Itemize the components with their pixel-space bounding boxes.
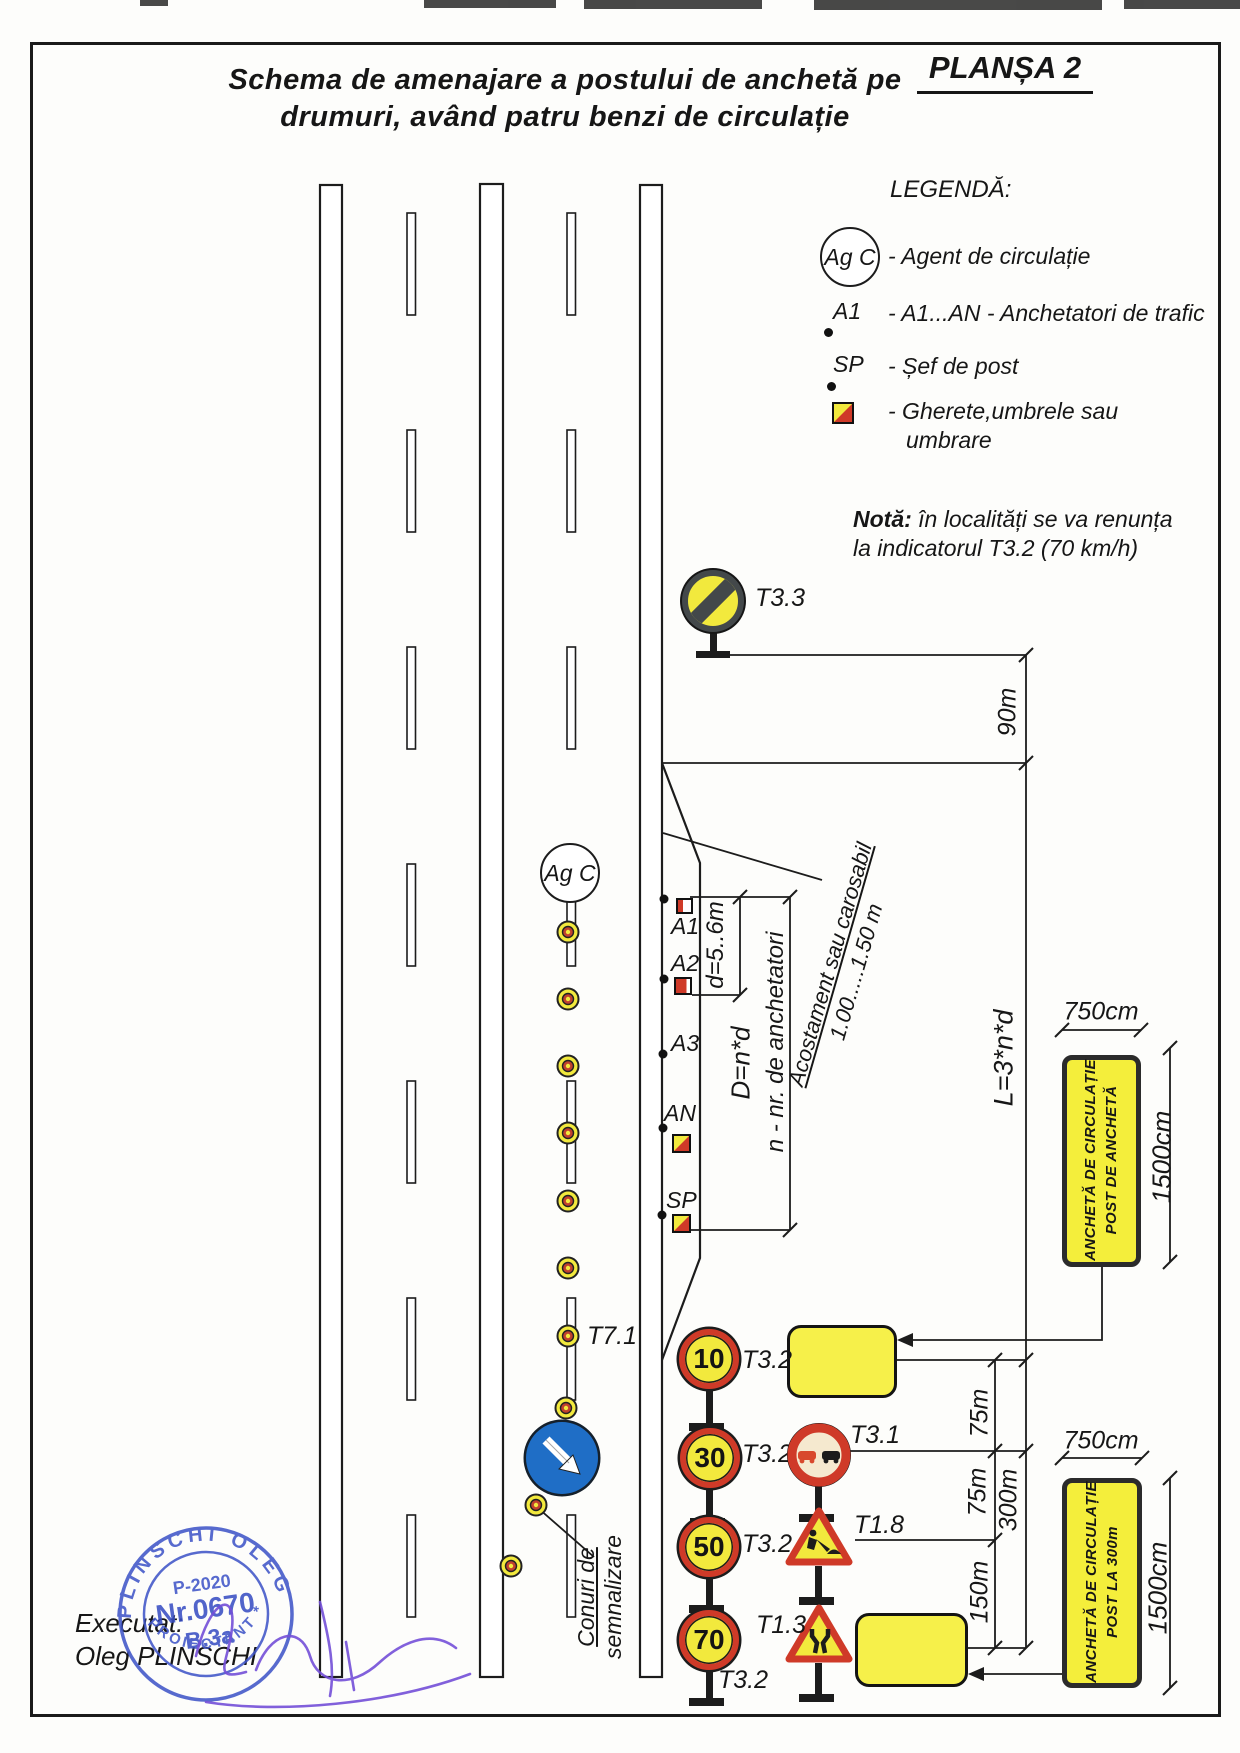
info-panel-2-text: ANCHETĂ DE CIRCULAȚIE POST LA 300m [1081,1481,1123,1683]
dim-1500cm-2: 1500cm [1143,1542,1174,1635]
agent-circle-icon: Ag C [820,227,880,287]
round-stamp: PLINSCHI OLEG PROIECTANT * P-2020 Nr.067… [98,1506,498,1736]
sp-dot-icon [827,382,836,391]
dim-L-formula: L=3*n*d [989,1010,1020,1107]
note-line1: Notă: în localități se va renunța [853,506,1173,533]
t18-roadworks-sign [785,1506,853,1568]
marker-a1: A1 [671,913,699,940]
cones-note: Conuri de semnalizare [573,1535,627,1659]
legend-sp-label: - Șef de post [888,353,1018,380]
a1-dot-icon [824,328,833,337]
road-edge-left [320,185,342,1677]
dim-n-note: n - nr. de anchetatori [762,932,790,1153]
booth-box-1 [787,1325,897,1398]
t13-label: T1.3 [756,1611,806,1640]
booth-icon [832,402,854,424]
page-title: Schema de amenajare a postului de anchet… [165,64,965,97]
dim-750cm-1: 750cm [1063,998,1138,1027]
t32-label-4: T3.2 [718,1666,768,1695]
speed-50-value: 50 [693,1531,724,1563]
t71-label: T7.1 [587,1322,637,1351]
marker-sp: SP [666,1187,697,1214]
t32-label-1: T3.2 [742,1346,792,1375]
speed-70-value: 70 [693,1624,724,1656]
speed-50-sign: 50 [679,1517,739,1577]
sheet-number: PLANȘA 2 [917,50,1093,94]
dim-75m-2: 75m [964,1468,993,1517]
speed-70-sign: 70 [679,1610,739,1670]
note-line2: la indicatorul T3.2 (70 km/h) [853,535,1138,562]
cones-note-line2: semnalizare [600,1535,626,1659]
dim-750cm-2: 750cm [1063,1427,1138,1456]
legend-agent-label: - Agent de circulație [888,243,1090,270]
agent-road-text: Ag C [544,860,595,887]
dim-75m-1: 75m [966,1389,995,1438]
marker-a2: A2 [671,950,699,977]
marker-a3: A3 [671,1030,699,1057]
speed-10-value: 10 [693,1343,724,1375]
t32-label-2: T3.2 [742,1440,792,1469]
marker-an: AN [664,1100,696,1127]
dim-90m: 90m [994,688,1023,737]
road-lines [320,184,662,1677]
plan-sheet: Schema de amenajare a postului de anchet… [0,0,1240,1753]
speed-10-sign: 10 [679,1329,739,1389]
legend-a1-symbol: A1 [833,298,861,325]
t33-label: T3.3 [755,584,805,613]
post-area-taper [662,763,700,1360]
legend-booth-label2: umbrare [906,427,992,454]
info-panel-1-text: ANCHETĂ DE CIRCULAȚIE POST DE ANCHETĂ [1080,1059,1122,1261]
dim-d-spacing: d=5..6m [702,901,730,988]
panel1-line2: POST DE ANCHETĂ [1103,1086,1120,1235]
booth-a2 [674,977,692,995]
t31-no-overtaking-sign [786,1422,852,1488]
keep-right-sign [526,1422,598,1494]
panel2-line2: POST LA 300m [1104,1526,1121,1638]
agent-symbol-text: Ag C [824,244,875,271]
t31-label: T3.1 [850,1421,900,1450]
t33-end-restrictions-sign [682,570,744,632]
road-edge-right [640,185,662,1677]
speed-30-value: 30 [694,1442,725,1474]
booth-an [672,1134,691,1153]
diagonal-band-icon [682,571,744,632]
legend-booth-label: - Gherete,umbrele sau [888,398,1118,425]
speed-30-sign: 30 [680,1428,740,1488]
dim-D-formula: D=n*d [726,1027,757,1100]
arrowhead-left-1 [897,1333,913,1347]
legend-a1-label: - A1...AN - Anchetatori de trafic [888,300,1205,327]
arrowhead-left-2 [968,1667,984,1681]
booth-sp [672,1214,691,1233]
panel1-line1: ANCHETĂ DE CIRCULAȚIE [1082,1059,1099,1261]
note-label: Notă: [853,506,912,532]
booth-a1 [676,898,693,914]
booth-box-2 [855,1613,968,1687]
dim-300m: 300m [995,1469,1024,1532]
legend-title: LEGENDĂ: [890,176,1011,204]
agent-on-road: Ag C [540,843,600,903]
panel2-line1: ANCHETĂ DE CIRCULAȚIE [1083,1481,1100,1683]
dim-150m: 150m [966,1561,995,1624]
dim-1500cm-1: 1500cm [1147,1111,1178,1204]
page-title-line2: drumuri, având patru benzi de circulație [165,101,965,134]
scan-artifacts [140,0,1240,10]
legend-sp-symbol: SP [833,351,864,378]
t18-label: T1.8 [854,1511,904,1540]
cones-note-line1: Conuri de [573,1547,599,1647]
shoulder-leader [663,833,822,880]
road-median [480,184,503,1677]
white-arrow-icon [526,1422,598,1494]
note-text1: în localități se va renunța [918,506,1172,532]
